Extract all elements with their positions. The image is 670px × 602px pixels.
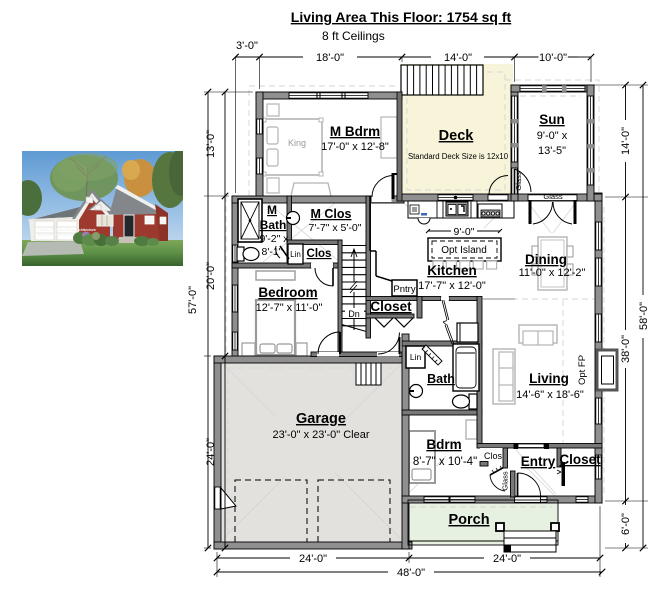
svg-text:M: M	[267, 203, 277, 217]
svg-text:Dn: Dn	[348, 309, 360, 319]
svg-text:18'-0": 18'-0"	[316, 52, 344, 64]
svg-text:58'-0": 58'-0"	[638, 302, 650, 330]
svg-text:Glass: Glass	[543, 192, 562, 201]
svg-text:14'-6" x 18'-6": 14'-6" x 18'-6"	[516, 389, 584, 401]
svg-text:Clos: Clos	[484, 451, 503, 461]
svg-text:Lin: Lin	[410, 352, 422, 362]
svg-text:24'-0": 24'-0"	[299, 553, 327, 565]
svg-text:23'-0" x 23'-0" Clear: 23'-0" x 23'-0" Clear	[273, 429, 370, 441]
svg-text:Glass: Glass	[514, 171, 523, 190]
svg-text:Closet: Closet	[559, 452, 601, 467]
svg-text:Living Area This Floor: 1754 s: Living Area This Floor: 1754 sq ft	[291, 9, 512, 25]
svg-text:Closet: Closet	[370, 299, 412, 314]
svg-text:Lin: Lin	[290, 250, 301, 259]
svg-text:King: King	[288, 138, 306, 148]
svg-text:Opt Island: Opt Island	[441, 245, 487, 256]
svg-text:8 ft Ceilings: 8 ft Ceilings	[322, 29, 385, 43]
svg-text:13'-0": 13'-0"	[205, 130, 217, 158]
svg-text:14'-0": 14'-0"	[620, 127, 632, 155]
svg-text:14'-0": 14'-0"	[444, 52, 472, 64]
svg-text:9'-0" x: 9'-0" x	[537, 130, 568, 142]
svg-text:11'-0" x 12'-2": 11'-0" x 12'-2"	[519, 267, 586, 279]
svg-text:3'-0": 3'-0"	[236, 40, 258, 52]
svg-text:Clos: Clos	[307, 248, 332, 260]
svg-text:9'-2" x: 9'-2" x	[259, 233, 289, 245]
svg-text:M Bdrm: M Bdrm	[330, 124, 380, 139]
svg-text:Bedroom: Bedroom	[258, 285, 317, 300]
svg-text:©2018-2019 Art Form Architectu: ©2018-2019 Art Form Architecture	[38, 228, 96, 232]
svg-text:Glass: Glass	[501, 471, 510, 490]
svg-text:13'-5": 13'-5"	[538, 145, 566, 157]
svg-text:Dining: Dining	[525, 252, 567, 267]
svg-text:Entry: Entry	[521, 454, 556, 469]
svg-text:Living: Living	[529, 371, 569, 386]
svg-text:24'-0": 24'-0"	[205, 438, 217, 466]
svg-text:Deck: Deck	[439, 128, 475, 144]
svg-text:20'-0": 20'-0"	[205, 262, 217, 290]
svg-text:M Clos: M Clos	[311, 207, 352, 221]
svg-text:8'-7" x 10'-4": 8'-7" x 10'-4"	[413, 456, 477, 468]
svg-text:Porch: Porch	[448, 512, 489, 528]
svg-text:6'-0": 6'-0"	[620, 513, 632, 535]
svg-text:24'-0": 24'-0"	[493, 553, 521, 565]
svg-text:48'-0": 48'-0"	[397, 567, 425, 579]
svg-text:Pntry: Pntry	[393, 284, 415, 295]
svg-text:17'-0" x 12'-8": 17'-0" x 12'-8"	[321, 141, 389, 153]
svg-text:57'-0": 57'-0"	[187, 286, 199, 314]
svg-text:10'-0": 10'-0"	[539, 52, 567, 64]
svg-text:Standard Deck Size is 12x10: Standard Deck Size is 12x10	[408, 152, 509, 161]
svg-text:Bdrm: Bdrm	[426, 437, 461, 452]
svg-text:Kitchen: Kitchen	[427, 263, 477, 278]
svg-text:7'-7" x 5'-0": 7'-7" x 5'-0"	[309, 222, 362, 234]
svg-text:38'-0": 38'-0"	[620, 335, 632, 363]
svg-text:Sun: Sun	[539, 112, 565, 127]
svg-text:17'-7" x 12'-0": 17'-7" x 12'-0"	[418, 280, 486, 292]
svg-text:8'-1": 8'-1"	[262, 246, 283, 258]
svg-text:12'-7" x 11'-0": 12'-7" x 11'-0"	[256, 302, 323, 314]
svg-text:Bath: Bath	[427, 372, 455, 386]
svg-text:Opt FP: Opt FP	[577, 355, 588, 385]
svg-text:Garage: Garage	[296, 411, 346, 427]
svg-text:Boydenberry Circ.rvt: Boydenberry Circ.rvt	[38, 233, 75, 237]
svg-text:Bath: Bath	[260, 218, 287, 232]
svg-text:9'-0": 9'-0"	[454, 226, 475, 238]
